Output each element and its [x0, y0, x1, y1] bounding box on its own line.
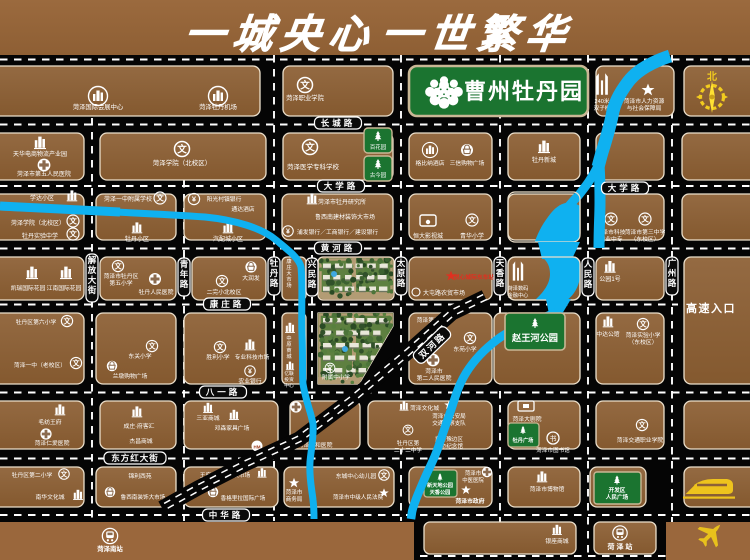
svg-text:菏泽学院（北校区）: 菏泽学院（北校区） [11, 219, 65, 227]
svg-text:文: 文 [638, 421, 646, 430]
svg-text:文: 文 [148, 342, 156, 351]
svg-text:大润发: 大润发 [242, 274, 260, 282]
svg-text:240米: 240米 [595, 97, 610, 105]
svg-text:菏泽市第五人民医院: 菏泽市第五人民医院 [17, 170, 71, 178]
svg-text:菏泽一中附属学校: 菏泽一中附属学校 [104, 195, 152, 203]
svg-text:牡丹小区: 牡丹小区 [125, 235, 149, 243]
svg-text:文: 文 [299, 79, 310, 91]
svg-text:大: 大 [88, 275, 97, 285]
svg-text:路: 路 [308, 279, 317, 289]
svg-text:牡丹人民医院: 牡丹人民医院 [139, 288, 174, 296]
svg-text:州: 州 [667, 268, 677, 278]
svg-text:中华路: 中华路 [209, 510, 244, 520]
svg-text:曹州牡丹园: 曹州牡丹园 [464, 79, 584, 104]
svg-text:文: 文 [381, 470, 388, 479]
svg-text:牡丹实验中学: 牡丹实验中学 [22, 232, 58, 240]
svg-text:菏泽学院（北校区）: 菏泽学院（北校区） [153, 158, 212, 167]
svg-text:文: 文 [607, 214, 615, 224]
svg-text:中心: 中心 [284, 382, 294, 389]
svg-text:凯瑞国际花园: 凯瑞国际花园 [11, 284, 46, 292]
svg-text:原: 原 [397, 268, 406, 278]
svg-text:牡丹区第二小学: 牡丹区第二小学 [12, 471, 53, 479]
svg-text:文: 文 [61, 469, 68, 478]
svg-text:菏泽牡丹机场: 菏泽牡丹机场 [199, 102, 237, 111]
svg-text:阳光村镇银行: 阳光村镇银行 [207, 195, 242, 203]
svg-text:文: 文 [72, 359, 80, 368]
svg-text:文: 文 [63, 317, 71, 326]
svg-text:鲁西南建材装饰大市场: 鲁西南建材装饰大市场 [315, 213, 375, 221]
svg-text:菏泽市: 菏泽市 [465, 469, 482, 477]
svg-text:文: 文 [327, 364, 334, 372]
svg-text:古今园: 古今园 [370, 171, 386, 179]
svg-text:东城中心幼儿园: 东城中心幼儿园 [336, 472, 377, 480]
svg-text:文: 文 [468, 215, 476, 225]
svg-text:菏泽市: 菏泽市 [286, 488, 303, 496]
svg-text:人民广场: 人民广场 [605, 493, 629, 501]
svg-text:菏 泽 站: 菏 泽 站 [608, 542, 633, 551]
svg-text:东苑小学: 东苑小学 [453, 345, 476, 353]
svg-text:（东校区）: （东校区） [631, 235, 660, 243]
svg-text:牡丹广场: 牡丹广场 [513, 436, 534, 444]
svg-text:鲁西南装饰大市场: 鲁西南装饰大市场 [121, 493, 166, 501]
svg-text:专业科技市场: 专业科技市场 [235, 353, 270, 361]
svg-text:高速入口: 高速入口 [686, 301, 736, 315]
svg-text:人: 人 [584, 259, 593, 269]
svg-text:菏泽市中级人民法院: 菏泽市中级人民法院 [333, 493, 384, 501]
svg-text:菏泽国际会展中心: 菏泽国际会展中心 [73, 102, 124, 111]
svg-text:牡丹区第: 牡丹区第 [397, 439, 420, 447]
svg-text:路: 路 [270, 278, 279, 288]
svg-text:广: 广 [668, 258, 677, 268]
svg-text:路: 路 [180, 279, 189, 289]
svg-text:菏泽职业学院: 菏泽职业学院 [286, 93, 324, 102]
svg-text:商务局: 商务局 [286, 495, 303, 503]
svg-text:牡丹区第六小学: 牡丹区第六小学 [16, 318, 57, 326]
svg-text:菏泽市政府: 菏泽市政府 [456, 497, 485, 505]
svg-text:中: 中 [286, 334, 291, 342]
svg-text:文: 文 [69, 229, 77, 239]
svg-text:丹: 丹 [270, 268, 279, 278]
svg-text:¥: ¥ [248, 369, 252, 376]
svg-text:通达酒店: 通达酒店 [231, 205, 254, 213]
svg-text:菏泽市牡丹研究所: 菏泽市牡丹研究所 [318, 198, 366, 206]
svg-text:路: 路 [668, 278, 677, 288]
svg-text:太: 太 [396, 258, 406, 268]
svg-text:投资: 投资 [284, 376, 294, 383]
svg-text:菏泽南站: 菏泽南站 [97, 544, 123, 553]
svg-text:附属中小学: 附属中小学 [322, 373, 350, 381]
svg-text:亿联: 亿联 [284, 370, 294, 377]
svg-text:牡丹新城: 牡丹新城 [532, 156, 556, 164]
svg-text:菏泽交通职业学院: 菏泽交通职业学院 [617, 436, 664, 444]
svg-text:文: 文 [156, 193, 164, 203]
svg-text:菏泽市牡丹区: 菏泽市牡丹区 [104, 272, 139, 280]
svg-text:文: 文 [304, 141, 315, 153]
svg-text:公园1号: 公园1号 [599, 276, 620, 283]
svg-text:浦发银行／工商银行／建设银行: 浦发银行／工商银行／建设银行 [297, 228, 378, 236]
svg-text:汽配城小区: 汽配城小区 [213, 235, 243, 243]
svg-text:民: 民 [308, 269, 317, 279]
svg-text:中达公馆: 中达公馆 [596, 330, 619, 338]
svg-text:菏泽市博物馆: 菏泽市博物馆 [530, 485, 565, 493]
svg-text:一世繁华: 一世繁华 [379, 12, 576, 57]
svg-text:牡: 牡 [270, 258, 279, 268]
svg-text:菏泽市第三中学: 菏泽市第三中学 [625, 228, 666, 236]
svg-text:成庄·府客汇: 成庄·府客汇 [124, 422, 155, 430]
svg-text:开发区: 开发区 [609, 486, 626, 494]
svg-text:文: 文 [114, 262, 122, 271]
svg-text:香: 香 [495, 268, 505, 278]
svg-text:商: 商 [286, 346, 291, 354]
svg-text:大: 大 [286, 269, 291, 277]
svg-text:恒大影视城: 恒大影视城 [413, 232, 443, 240]
svg-text:大学路: 大学路 [608, 183, 643, 193]
svg-text:第五小学: 第五小学 [109, 279, 132, 287]
svg-text:一城央心: 一城央心 [182, 12, 379, 57]
svg-text:农业银行: 农业银行 [238, 377, 261, 385]
svg-text:解: 解 [88, 255, 97, 265]
svg-text:康: 康 [286, 257, 291, 265]
svg-text:原: 原 [286, 341, 291, 348]
svg-text:文: 文 [218, 277, 226, 286]
svg-text:（东校区）: （东校区） [629, 338, 658, 346]
svg-text:路: 路 [496, 278, 505, 288]
svg-text:第二人民医院: 第二人民医院 [417, 374, 452, 382]
svg-text:邓森家具广场: 邓森家具广场 [215, 424, 250, 432]
svg-text:长城路: 长城路 [321, 118, 356, 128]
svg-text:文: 文 [466, 334, 474, 343]
svg-text:与社会保障局: 与社会保障局 [627, 104, 662, 112]
svg-text:天华电商物流产业园: 天华电商物流产业园 [13, 150, 67, 158]
svg-text:场: 场 [286, 281, 291, 289]
svg-text:天: 天 [496, 258, 505, 268]
svg-text:年: 年 [180, 269, 189, 279]
svg-text:三信购物广场: 三信购物广场 [450, 159, 485, 167]
svg-text:街: 街 [87, 285, 97, 295]
svg-text:菏泽大剧院: 菏泽大剧院 [513, 415, 542, 423]
svg-text:菏泽仁爱医院: 菏泽仁爱医院 [35, 439, 70, 447]
svg-text:锦利西苑: 锦利西苑 [128, 472, 151, 480]
svg-text:文: 文 [176, 143, 187, 155]
svg-text:菏泽市: 菏泽市 [425, 367, 443, 375]
svg-text:菏泽一中（老校区）: 菏泽一中（老校区） [14, 361, 66, 369]
svg-text:民: 民 [584, 269, 593, 279]
svg-text:南华文化城: 南华文化城 [36, 493, 65, 501]
svg-text:菏泽市人力资源: 菏泽市人力资源 [624, 97, 665, 105]
svg-text:¥: ¥ [286, 229, 290, 236]
svg-text:八一路: 八一路 [205, 387, 241, 397]
svg-text:城: 城 [286, 353, 292, 360]
svg-text:青华小学: 青华小学 [460, 232, 484, 240]
svg-text:黄河路: 黄河路 [321, 243, 356, 253]
svg-text:天香公园: 天香公园 [430, 488, 451, 496]
svg-text:二完小北校区: 二完小北校区 [207, 288, 242, 296]
svg-text:香格里拉国际广场: 香格里拉国际广场 [221, 494, 266, 502]
svg-text:文: 文 [641, 214, 649, 224]
svg-text:康庄路: 康庄路 [210, 299, 245, 309]
svg-text:文: 文 [405, 426, 412, 434]
svg-text:大学路: 大学路 [324, 181, 359, 191]
svg-text:菏泽市图书馆: 菏泽市图书馆 [536, 446, 570, 454]
svg-text:中医医院: 中医医院 [462, 476, 484, 484]
svg-text:兰墩购物广场: 兰墩购物广场 [113, 372, 148, 380]
svg-text:青: 青 [180, 259, 189, 269]
svg-text:路: 路 [584, 279, 593, 289]
svg-text:文: 文 [639, 320, 647, 329]
svg-text:书: 书 [550, 434, 557, 443]
svg-text:兴: 兴 [308, 259, 317, 269]
svg-text:东方红大街: 东方红大街 [111, 453, 159, 463]
svg-text:三亚商城: 三亚商城 [196, 414, 219, 422]
svg-text:格比纳酒店: 格比纳酒店 [416, 159, 445, 167]
svg-text:文: 文 [216, 343, 224, 352]
svg-text:毛纺王府: 毛纺王府 [38, 418, 61, 426]
svg-text:胜利小学: 胜利小学 [206, 353, 229, 361]
svg-text:市: 市 [286, 275, 291, 283]
svg-text:菏泽医学专科学校: 菏泽医学专科学校 [287, 162, 340, 171]
svg-text:学达小区: 学达小区 [30, 194, 54, 202]
svg-text:路: 路 [397, 278, 406, 288]
svg-text:百花园: 百花园 [370, 143, 386, 151]
svg-text:庄: 庄 [286, 263, 291, 271]
svg-text:文: 文 [69, 216, 77, 226]
svg-text:菏泽文化城: 菏泽文化城 [410, 404, 439, 412]
svg-text:菏泽实验小学: 菏泽实验小学 [626, 331, 661, 339]
svg-text:菏泽数码: 菏泽数码 [508, 284, 529, 292]
svg-text:放: 放 [87, 265, 97, 275]
svg-text:二十二中学: 二十二中学 [394, 446, 422, 454]
svg-text:赵王河公园: 赵王河公园 [511, 332, 558, 343]
svg-text:HM: HM [254, 445, 261, 450]
svg-text:悦心城际东车站: 悦心城际东车站 [454, 273, 495, 281]
svg-text:银座商城: 银座商城 [545, 537, 568, 545]
svg-text:东关小学: 东关小学 [128, 352, 151, 360]
svg-text:杰昌商城: 杰昌商城 [129, 437, 152, 445]
svg-text:新天地公园: 新天地公园 [427, 481, 453, 489]
svg-text:大屯路农贸市场: 大屯路农贸市场 [423, 289, 465, 297]
svg-text:江南国际花园: 江南国际花园 [47, 284, 82, 292]
